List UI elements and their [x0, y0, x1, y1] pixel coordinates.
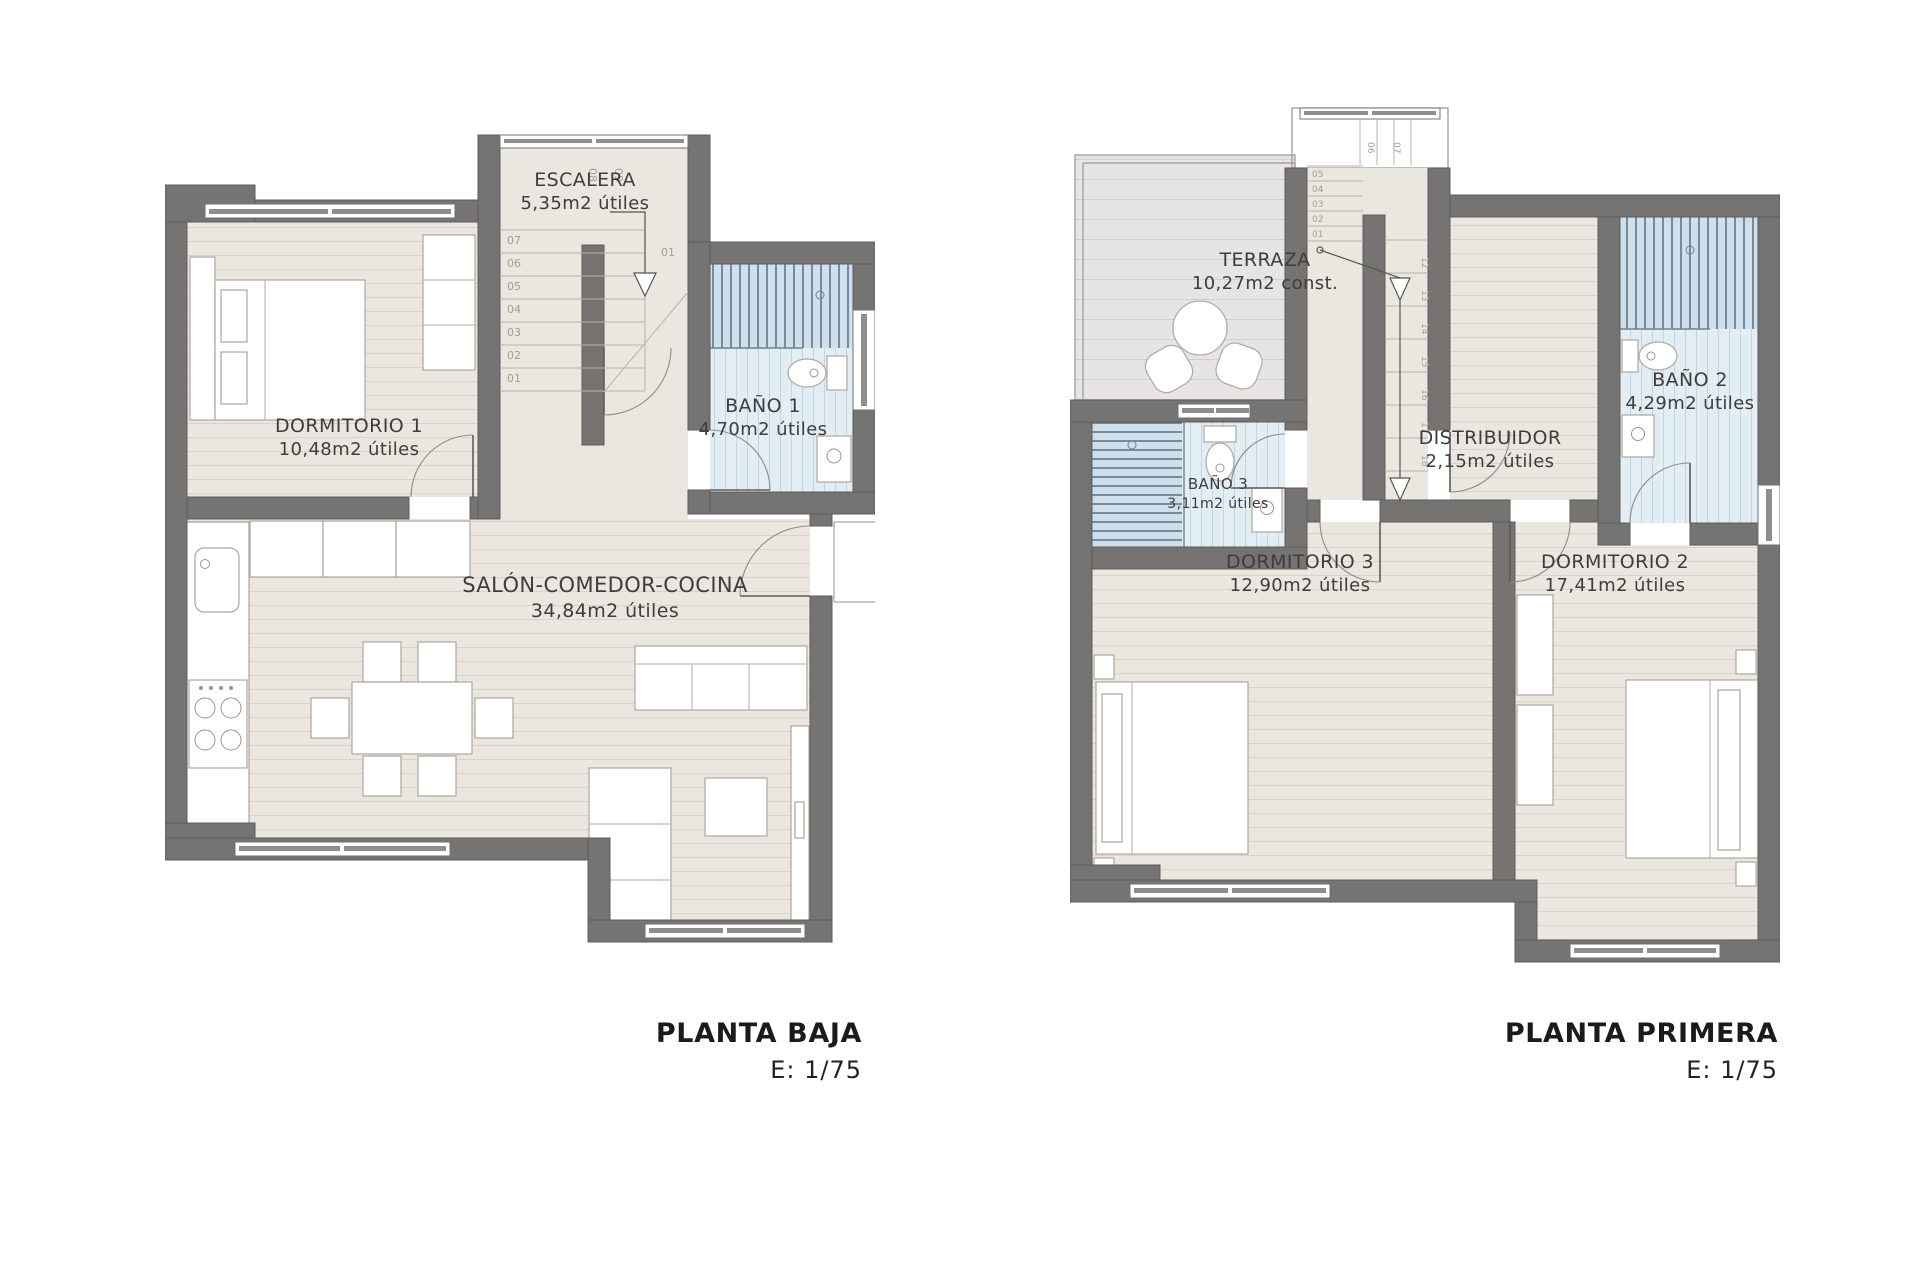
room-area: 34,84m2 útiles [462, 598, 748, 624]
bed-icon [190, 257, 365, 420]
stair-number: 15 [1419, 356, 1429, 367]
stair-number: 03 [507, 326, 521, 339]
room-name: DORMITORIO 1 [275, 414, 423, 438]
ground-floor-plan: 07 06 05 04 03 02 01 08 09 01 DORMITORIO… [165, 130, 875, 945]
stair-number: 01 [661, 246, 675, 259]
stove-icon [189, 680, 247, 768]
floor-plan-sheet: 07 06 05 04 03 02 01 08 09 01 DORMITORIO… [0, 0, 1920, 1280]
room-label-bano-2: BAÑO 2 4,29m2 útiles [1626, 368, 1755, 416]
stair-number: 05 [1312, 170, 1323, 180]
first-floor-title-block: PLANTA PRIMERA E: 1/75 [1396, 1018, 1778, 1084]
sink-icon [817, 436, 851, 482]
room-area: 2,15m2 útiles [1419, 450, 1562, 474]
first-floor-plan-drawing: 05 04 03 02 01 12 13 14 15 16 17 18 06 0… [1070, 100, 1780, 970]
plan-scale: E: 1/75 [480, 1056, 862, 1084]
sink-icon [1622, 415, 1654, 457]
bed-icon [1626, 650, 1758, 886]
stair-number: 12 [1419, 257, 1429, 268]
room-area: 10,48m2 útiles [275, 438, 423, 462]
plan-title: PLANTA BAJA [480, 1018, 862, 1049]
room-name: SALÓN-COMEDOR-COCINA [462, 572, 748, 598]
stair-number: 04 [507, 303, 521, 316]
room-label-escalera: ESCALERA 5,35m2 útiles [521, 168, 650, 216]
toilet-icon [1204, 426, 1236, 481]
stair-number: 14 [1419, 323, 1429, 335]
stair-number: 13 [1419, 290, 1429, 301]
stair-number: 03 [1312, 200, 1323, 210]
room-area: 17,41m2 útiles [1541, 574, 1689, 598]
room-name: DISTRIBUIDOR [1419, 426, 1562, 450]
ground-floor-title-block: PLANTA BAJA E: 1/75 [480, 1018, 862, 1084]
room-label-dormitorio-2: DORMITORIO 2 17,41m2 útiles [1541, 550, 1689, 598]
room-label-dormitorio-3: DORMITORIO 3 12,90m2 útiles [1226, 550, 1374, 598]
room-name: BAÑO 2 [1626, 368, 1755, 392]
closet-row-icon [250, 521, 470, 577]
room-name: BAÑO 3 [1167, 474, 1268, 494]
room-label-distribuidor: DISTRIBUIDOR 2,15m2 útiles [1419, 426, 1562, 474]
room-label-dormitorio-1: DORMITORIO 1 10,48m2 útiles [275, 414, 423, 462]
stair-number: 07 [507, 234, 521, 247]
room-area: 4,29m2 útiles [1626, 392, 1755, 416]
room-name: DORMITORIO 2 [1541, 550, 1689, 574]
stair-number: 02 [1312, 215, 1323, 225]
stair-number: 06 [1365, 142, 1375, 154]
room-label-bano-3: BAÑO 3 3,11m2 útiles [1167, 474, 1268, 514]
room-area: 5,35m2 útiles [521, 192, 650, 216]
stair-number: 02 [507, 349, 521, 362]
room-area: 3,11m2 útiles [1167, 494, 1268, 514]
stair-number: 06 [507, 257, 521, 270]
room-name: TERRAZA [1192, 248, 1338, 272]
ground-floor-plan-drawing: 07 06 05 04 03 02 01 08 09 01 [165, 130, 875, 945]
room-label-bano-1: BAÑO 1 4,70m2 útiles [699, 394, 828, 442]
room-area: 4,70m2 útiles [699, 418, 828, 442]
stair-number: 04 [1312, 185, 1324, 195]
room-name: ESCALERA [521, 168, 650, 192]
stair-number: 16 [1419, 389, 1429, 401]
plan-scale: E: 1/75 [1396, 1056, 1778, 1084]
plan-title: PLANTA PRIMERA [1396, 1018, 1778, 1049]
bed-icon [1094, 655, 1248, 882]
stair-number: 07 [1391, 142, 1401, 153]
stair-number: 01 [1312, 230, 1323, 240]
room-area: 12,90m2 útiles [1226, 574, 1374, 598]
stair-number: 01 [507, 372, 521, 385]
room-area: 10,27m2 const. [1192, 272, 1338, 296]
room-label-salon: SALÓN-COMEDOR-COCINA 34,84m2 útiles [462, 572, 748, 624]
room-name: BAÑO 1 [699, 394, 828, 418]
tv-unit-icon [791, 726, 809, 922]
room-label-terraza: TERRAZA 10,27m2 const. [1192, 248, 1338, 296]
wardrobe-icon [423, 235, 475, 370]
first-floor-plan: 05 04 03 02 01 12 13 14 15 16 17 18 06 0… [1070, 100, 1780, 970]
stair-number: 05 [507, 280, 521, 293]
room-name: DORMITORIO 3 [1226, 550, 1374, 574]
toilet-icon [788, 356, 847, 390]
entry-porch-step [834, 522, 875, 602]
